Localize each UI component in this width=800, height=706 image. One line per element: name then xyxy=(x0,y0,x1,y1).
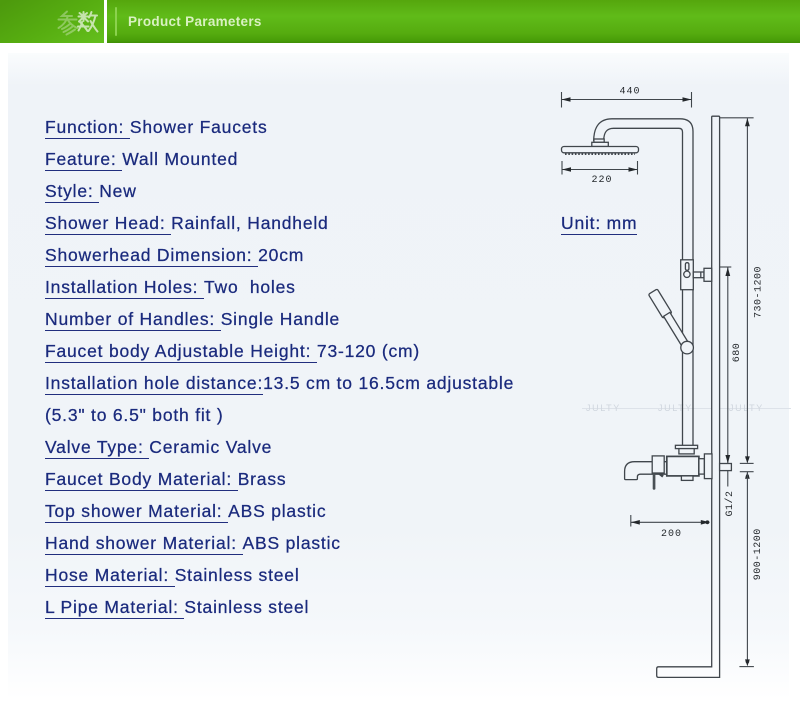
svg-text:730-1200: 730-1200 xyxy=(753,266,764,318)
svg-text:440: 440 xyxy=(619,87,640,98)
svg-text:680: 680 xyxy=(732,343,743,363)
svg-text:900-1200: 900-1200 xyxy=(753,528,764,580)
svg-text:G1/2: G1/2 xyxy=(724,490,736,516)
svg-text:200: 200 xyxy=(661,529,682,540)
svg-text:220: 220 xyxy=(591,175,612,186)
